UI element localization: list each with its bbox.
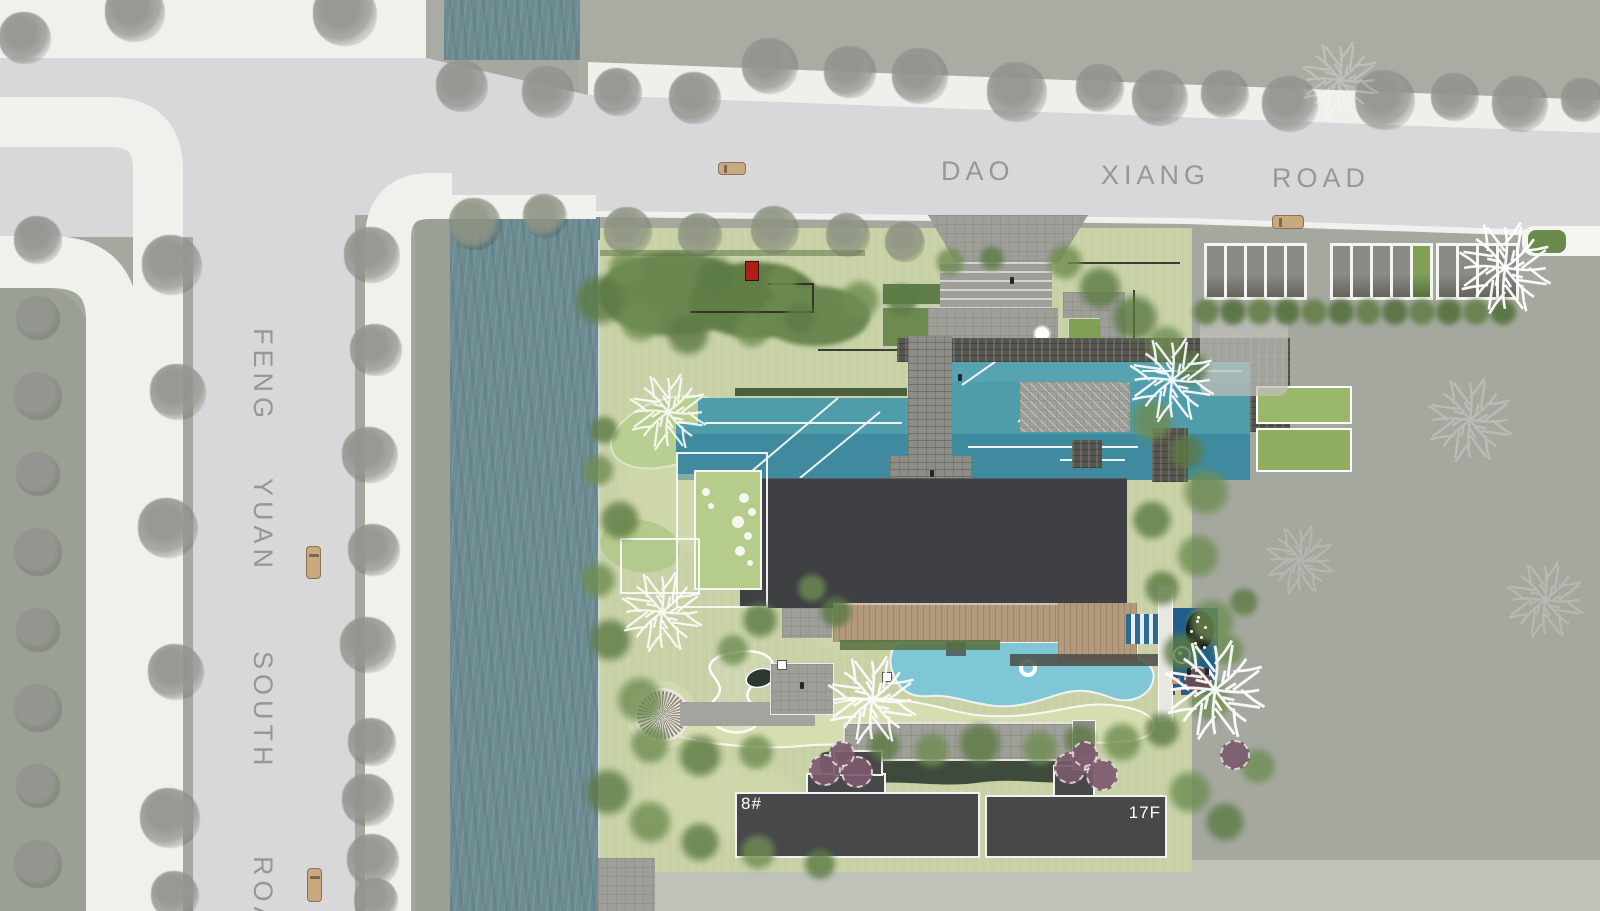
flower-layer	[0, 0, 1600, 911]
lawn-patch	[640, 760, 800, 840]
curb-tree-icon	[885, 222, 925, 262]
garden-tree-icon	[715, 632, 751, 668]
street-tree-icon	[742, 38, 798, 94]
reflecting-pool-east	[940, 382, 1250, 480]
garden-tree-icon	[1228, 586, 1260, 618]
ripple-line	[745, 398, 838, 477]
flowering-tree-icon	[1184, 666, 1212, 694]
kids-pool	[1172, 608, 1218, 695]
play-item	[1182, 684, 1189, 689]
parking-end-planter	[1528, 230, 1566, 253]
shrub-mass	[598, 252, 748, 336]
south-curb-line	[590, 214, 1540, 233]
person-icon	[1010, 277, 1014, 284]
garden-tree-icon	[738, 832, 778, 872]
car-windshield	[310, 876, 320, 879]
street-tree-icon	[14, 528, 62, 576]
hedge-shrub-icon	[1380, 297, 1410, 327]
street-tree-icon	[151, 871, 199, 911]
play-dot-icon	[1197, 616, 1200, 619]
parking-stall	[1499, 246, 1516, 297]
line-tree-icon	[630, 374, 706, 450]
garden-tree-icon	[912, 730, 952, 770]
building-17f-main: 17F	[985, 795, 1167, 858]
pool-float-ring	[1021, 661, 1035, 675]
water-features	[0, 0, 1600, 911]
street-tree-icon	[105, 0, 165, 42]
person-icon	[1187, 668, 1191, 675]
ripple-line	[800, 412, 880, 478]
top-road-label-word-3: ROAD	[1272, 163, 1370, 194]
garden-tree-icon	[1166, 768, 1214, 816]
street-tree-icon	[14, 216, 62, 264]
street-tree-icon	[1132, 70, 1188, 126]
garden-tree-icon	[764, 264, 800, 300]
line-tree-icon	[828, 656, 915, 743]
curb-tree-icon	[751, 206, 799, 254]
site-tree-layer	[0, 0, 1600, 911]
garden-wall	[768, 283, 814, 285]
red-bench	[745, 261, 759, 281]
top-road-surface	[0, 58, 1600, 237]
deck-steps	[782, 608, 832, 638]
garden-wall	[1133, 290, 1135, 358]
top-road-label-word-1: DAO	[941, 156, 1015, 187]
garden-tree-icon	[572, 272, 628, 328]
street-tree-icon	[1355, 70, 1415, 130]
street-tree-icon	[354, 878, 398, 911]
flowering-tree-icon	[1086, 759, 1118, 791]
garden-tree-icon	[1186, 676, 1234, 724]
garden-tree-icon	[1100, 720, 1144, 764]
garden-tree-icon	[586, 616, 634, 664]
stone-bridge	[908, 336, 952, 462]
garden-path	[680, 702, 815, 726]
left-road-label-word-3: SOUTH	[247, 651, 278, 771]
line-tree-icon	[1166, 641, 1265, 740]
pool-terrace	[1020, 382, 1130, 432]
garden-tree-icon	[1020, 728, 1060, 768]
parking-stall	[1287, 246, 1304, 297]
street-tree-icon	[987, 62, 1047, 122]
planter-frame-outer	[676, 452, 768, 608]
garden-pond	[744, 666, 776, 691]
street-tree-icon	[669, 72, 721, 124]
play-feature-oval	[1186, 611, 1214, 649]
flowering-tree-icon	[1072, 741, 1098, 767]
play-dot-icon	[1196, 620, 1199, 623]
boardwalk	[1158, 586, 1173, 722]
flowering-tree-icon	[841, 756, 873, 788]
planter-frame-inner	[694, 470, 762, 590]
garden-tree-icon	[1180, 466, 1232, 518]
flower-icon	[732, 516, 744, 528]
flower-icon	[739, 493, 749, 503]
cabana-stripes	[1126, 614, 1158, 644]
road-network	[0, 0, 1600, 911]
street-tree-icon	[347, 834, 399, 886]
sand-berm	[655, 698, 1154, 747]
line-tree-layer	[0, 0, 1600, 911]
curb-tree-icon	[678, 213, 722, 257]
street-tree-icon	[522, 66, 574, 118]
car-icon	[1272, 215, 1304, 229]
garden-tree-icon	[838, 278, 882, 322]
left-road-label: FENG YUAN SOUTH ROAD	[247, 328, 278, 911]
line-tree-icon	[1130, 338, 1214, 422]
hedge-shrub-icon	[1434, 297, 1464, 327]
parcel-riverbank	[415, 213, 452, 911]
hedge-planter	[1068, 318, 1104, 346]
intersection-corner-sidewalk-south	[0, 262, 112, 911]
stone-circle-plaza	[634, 688, 690, 742]
flowering-tree-icon	[809, 754, 841, 786]
timber-deck-east	[1058, 603, 1137, 662]
street-tree-icon	[148, 644, 204, 700]
planting-bed-kidney	[600, 381, 737, 483]
top-sidewalk-right	[588, 62, 1600, 133]
flowering-tree-icon	[1054, 752, 1086, 784]
parking-stall	[1353, 246, 1370, 297]
garden-wall	[812, 283, 814, 313]
flower-icon	[747, 560, 753, 566]
car-icon	[306, 546, 321, 579]
building-8-lobby	[833, 750, 883, 776]
person-icon	[958, 374, 962, 381]
pool-ripple-lines	[705, 357, 1242, 478]
parking-stall	[1207, 246, 1224, 297]
play-dot-icon	[1190, 630, 1193, 633]
line-tree-icon	[622, 572, 702, 652]
flowering-tree-icon	[829, 741, 855, 767]
garden-tree-icon	[796, 572, 828, 604]
street-tree-icon	[344, 227, 400, 283]
play-dot-icon	[1194, 642, 1197, 645]
street-tree-icon	[16, 608, 60, 652]
main-garden-walk	[843, 722, 1079, 761]
parking-stall	[1373, 246, 1390, 297]
garden-tree-icon	[1142, 710, 1182, 750]
street-tree-icon	[16, 764, 60, 808]
cascade-wall	[897, 338, 1255, 362]
stone-bridge-landing	[890, 456, 972, 484]
parking-end-path	[1522, 226, 1600, 256]
garden-tree-icon	[1142, 568, 1182, 608]
garden-tree-icon	[956, 720, 1004, 768]
street-tree-icon	[1201, 70, 1249, 118]
garden-tree-icon	[598, 498, 642, 542]
parking-stall	[1459, 246, 1476, 297]
hedge-shrub-icon	[1488, 297, 1518, 327]
curb-tree-icon	[826, 213, 870, 257]
garden-tree-icon	[1166, 432, 1206, 472]
car-icon	[307, 868, 322, 902]
flowering-tree-layer	[0, 0, 1600, 911]
shrub-mass	[690, 262, 820, 338]
garden-tree-icon	[1076, 264, 1124, 312]
street-tree-icon	[1561, 78, 1600, 122]
line-tree-icon	[1302, 42, 1378, 118]
play-item	[1175, 690, 1181, 695]
left-road-east-sidewalk	[388, 196, 452, 911]
line-tree-icon	[1428, 378, 1512, 462]
line-tree-icon	[1266, 526, 1334, 594]
garden-tree-icon	[1210, 632, 1246, 668]
street-tree-icon	[594, 68, 642, 116]
hedge-shrub-icon	[1272, 297, 1302, 327]
left-road-label-word-4: ROAD	[247, 856, 278, 911]
stream	[818, 745, 1092, 786]
reflecting-pool-inlet	[676, 424, 700, 474]
garden-tree-icon	[678, 820, 722, 864]
person-icon	[800, 682, 804, 689]
garden-tree-icon	[1186, 596, 1238, 648]
hedge-shrub-icon	[1218, 297, 1248, 327]
line-tree-icon	[1507, 562, 1583, 638]
garden-tree-icon	[866, 728, 902, 764]
flower-icon	[744, 532, 752, 540]
garden-tree-icon	[978, 244, 1006, 272]
street-tree-icon	[1262, 76, 1318, 132]
parking-stall	[1247, 246, 1264, 297]
patio	[770, 663, 834, 715]
garden-tree-icon	[1128, 396, 1176, 444]
target-circle-dot	[1178, 651, 1182, 655]
play-dot-icon	[1200, 636, 1203, 639]
top-road-label-word-2: XIANG	[1101, 160, 1210, 191]
garden-tree-icon	[934, 246, 966, 278]
garden-tree-icon	[582, 766, 634, 818]
vehicle-layer	[0, 0, 1600, 911]
ripple-line	[962, 357, 1002, 385]
lawn-patch	[620, 430, 770, 550]
parking-stall	[1267, 246, 1284, 297]
street-tree-icon	[342, 774, 394, 826]
hedge-shrub-icon	[1299, 297, 1329, 327]
street-tree-icon	[16, 452, 60, 496]
reflecting-pool-west	[698, 398, 940, 480]
street-tree-icon	[313, 0, 377, 46]
street-tree-icon	[340, 617, 396, 673]
planter-frame-side	[620, 538, 700, 594]
parking-stall	[1333, 246, 1350, 297]
flowering-tree-icon	[1220, 740, 1250, 770]
street-tree-icon	[138, 498, 198, 558]
person-icon	[930, 470, 934, 477]
garden-tree-icon	[1203, 800, 1247, 844]
garden-tree-icon	[578, 560, 618, 600]
entry-plaza-upper	[928, 215, 1088, 262]
side-path	[1063, 292, 1125, 318]
street-tree-layer	[0, 0, 1600, 911]
top-sidewalk-left	[0, 0, 426, 58]
hedge-planter	[882, 307, 1044, 347]
garden-tree-icon	[628, 722, 672, 766]
street-tree-icon	[1431, 73, 1479, 121]
street-tree-icon	[348, 524, 400, 576]
swimming-pool	[891, 642, 1154, 706]
garden-tree-icon	[618, 300, 662, 344]
parking-hedge-row	[0, 0, 1600, 911]
garden-tree-icon	[1238, 746, 1278, 786]
building-17f-label: 17F	[1129, 803, 1161, 823]
site-north-hedge-line	[600, 250, 865, 256]
curb-tree-icon	[604, 207, 652, 255]
line-tree-icon	[1459, 222, 1550, 313]
street-tree-icon	[142, 235, 202, 295]
street-tree-icon	[14, 684, 62, 732]
street-tree-icon	[1492, 76, 1548, 132]
cascade-channel	[927, 360, 1250, 382]
garden-tree-icon	[694, 254, 738, 298]
hedge-shrub-icon	[1245, 297, 1275, 327]
planting-bed-kidney	[596, 513, 684, 578]
parcel-south-light-band	[592, 860, 1600, 911]
person-icon	[1205, 668, 1209, 675]
hedge-planter	[882, 283, 1044, 305]
shrub-mass	[760, 286, 870, 346]
garden-tree-icon	[1109, 292, 1161, 344]
garden-tree-icon	[884, 282, 920, 318]
garden-tree-icon	[1144, 323, 1188, 367]
framed-planter	[1256, 428, 1352, 472]
street-tree-icon	[1076, 64, 1124, 112]
parking-stall	[1393, 246, 1410, 297]
car-windshield	[309, 554, 319, 557]
clubhouse-roof	[740, 478, 1127, 608]
garden-wall	[818, 349, 906, 351]
people-layer	[0, 0, 1600, 911]
site-lawn	[600, 228, 1192, 872]
garden-tree-icon	[1174, 532, 1222, 580]
river-canal-lower	[450, 213, 600, 911]
deck-hedge	[840, 640, 1000, 650]
hedge-shrub-icon	[1461, 297, 1491, 327]
play-dot-icon	[1203, 646, 1206, 649]
timber-deck	[833, 603, 1137, 642]
street-tree-icon	[140, 788, 200, 848]
parking-stall-group	[1330, 243, 1433, 300]
garden-tree-icon	[736, 732, 776, 772]
street-tree-icon	[16, 296, 60, 340]
garden-tree-icon	[588, 414, 620, 446]
ripple-line	[1018, 392, 1058, 422]
garden-tree-icon	[740, 600, 780, 640]
flower-icon	[735, 546, 745, 556]
gravel-pad	[1200, 312, 1288, 396]
building-8-label: 8#	[741, 794, 762, 814]
garden-tree-icon	[1130, 498, 1174, 542]
curb-tree-icon	[449, 198, 501, 250]
parcel-bottom-left	[0, 288, 88, 911]
garden-tree-icon	[782, 300, 818, 336]
street-tree-icon	[824, 46, 876, 98]
garden-tree-icon	[606, 248, 646, 288]
parking-stall-group	[1204, 243, 1307, 300]
play-dot-icon	[1204, 626, 1207, 629]
garden-wall	[1068, 262, 1180, 264]
site-plan-canvas: DAO XIANG ROAD FENG YUAN SOUTH ROAD	[0, 0, 1600, 911]
parking-stall	[1227, 246, 1244, 297]
cloud-path-outline	[710, 651, 773, 732]
stream-bridge	[1072, 720, 1096, 770]
curb-tree-layer	[0, 0, 1600, 911]
hedge-shrub-icon	[1407, 297, 1437, 327]
cascade-wall-east	[1250, 338, 1290, 432]
street-tree-icon	[436, 60, 488, 112]
side-path	[1100, 318, 1126, 362]
path-marker	[882, 672, 892, 682]
garden-tree-icon	[664, 310, 712, 358]
play-item	[1172, 678, 1180, 684]
entry-steps	[940, 262, 1052, 308]
garden-tree-icon	[818, 594, 854, 630]
street-tree-icon	[150, 364, 206, 420]
hedge-shrub-icon	[1326, 297, 1356, 327]
path-marker	[777, 660, 787, 670]
garden-tree-icon	[1160, 630, 1204, 674]
garden-tree-icon	[802, 846, 838, 882]
street-tree-icon	[892, 48, 948, 104]
hedge-shrub-icon	[1191, 297, 1221, 327]
lawn-patch	[790, 560, 910, 650]
target-circle	[1173, 646, 1191, 664]
street-tree-icon	[14, 840, 62, 888]
river-canal-upper	[444, 0, 580, 60]
garden-tree-icon	[580, 452, 616, 488]
flower-icon	[708, 503, 714, 509]
building-8-main: 8#	[735, 792, 980, 858]
building-8-wing	[806, 773, 886, 794]
intersection-corner-sidewalk-north	[0, 122, 158, 911]
framed-planter	[1256, 386, 1352, 424]
pool-step	[946, 640, 966, 656]
flower-icon	[748, 508, 756, 516]
garden-tree-icon	[1170, 348, 1210, 388]
garden-tree-icon	[676, 732, 724, 780]
flower-icon	[702, 488, 710, 496]
garden-tree-icon	[1045, 242, 1085, 282]
street-tree-icon	[350, 324, 402, 376]
building-17f-lobby	[1053, 765, 1095, 797]
parking-stall	[1413, 246, 1430, 297]
pool-edge-hedge	[735, 388, 907, 396]
street-tree-icon	[342, 427, 398, 483]
car-windshield	[1279, 218, 1282, 227]
garden-tree-icon	[1062, 722, 1098, 758]
pool-stone-island	[1072, 440, 1102, 468]
left-road-label-word-1: FENG	[247, 328, 278, 423]
left-road-label-word-2: YUAN	[247, 478, 278, 573]
street-parking-row	[0, 0, 1600, 911]
curb-tree-icon	[523, 194, 567, 238]
entry-plaza-lower	[928, 308, 1058, 362]
garden-wall	[690, 311, 814, 313]
parking-stall	[1479, 246, 1496, 297]
round-planter	[1033, 325, 1051, 343]
car-windshield	[724, 165, 727, 173]
garden-tree-icon	[614, 674, 666, 726]
street-tree-icon	[348, 718, 396, 766]
parking-stall	[1439, 246, 1456, 297]
car-icon	[718, 162, 746, 175]
garden-tree-icon	[732, 310, 772, 350]
hedge-shrub-icon	[1353, 297, 1383, 327]
patio-south	[598, 858, 655, 911]
deck-walk-shadow	[1010, 654, 1160, 666]
garden-tree-icon	[626, 798, 674, 846]
street-tree-icon	[0, 12, 51, 64]
